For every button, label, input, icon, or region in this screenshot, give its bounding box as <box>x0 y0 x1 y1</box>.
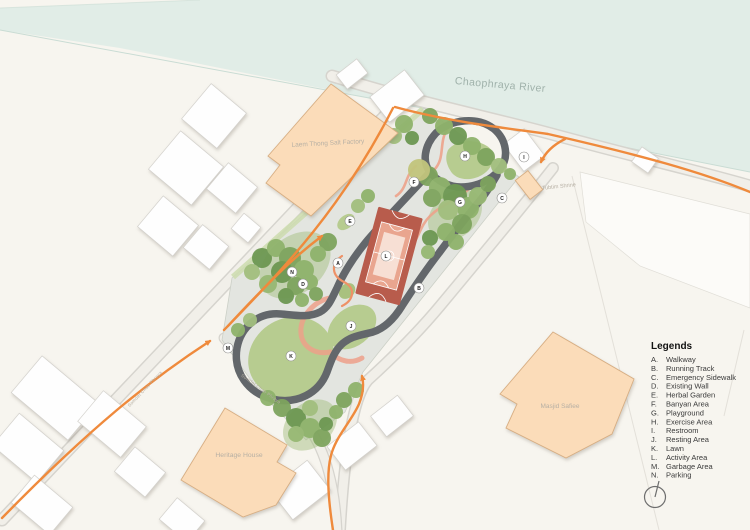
masjid-label: Masjid Safiee <box>540 403 579 410</box>
svg-text:H: H <box>463 154 467 160</box>
marker-i: I <box>519 152 529 162</box>
legend-title: Legends <box>651 341 693 352</box>
svg-text:Banyan Area: Banyan Area <box>666 400 710 409</box>
marker-k: K <box>286 351 296 361</box>
svg-text:N.: N. <box>651 471 659 480</box>
marker-c: C <box>497 193 507 203</box>
svg-text:K: K <box>289 354 293 360</box>
svg-text:Resting Area: Resting Area <box>666 435 710 444</box>
svg-text:G: G <box>458 200 462 206</box>
svg-text:Walkway: Walkway <box>666 355 696 364</box>
legend-row-k: K.Lawn <box>651 444 684 453</box>
svg-text:D.: D. <box>651 382 659 391</box>
svg-text:G.: G. <box>651 408 659 417</box>
svg-text:Restroom: Restroom <box>666 426 699 435</box>
svg-text:Herbal Garden: Herbal Garden <box>666 391 715 400</box>
svg-text:Playground: Playground <box>666 408 704 417</box>
svg-text:Lawn: Lawn <box>666 444 684 453</box>
svg-text:B: B <box>417 286 421 292</box>
marker-n: N <box>287 267 297 277</box>
marker-m: M <box>223 343 233 353</box>
svg-text:I.: I. <box>651 426 655 435</box>
svg-text:M: M <box>226 346 230 352</box>
svg-text:Running Track: Running Track <box>666 364 715 373</box>
svg-text:Existing Wall: Existing Wall <box>666 382 709 391</box>
svg-text:L: L <box>384 254 387 260</box>
svg-text:L.: L. <box>651 453 657 462</box>
svg-text:M.: M. <box>651 462 659 471</box>
svg-text:Garbage Area: Garbage Area <box>666 462 714 471</box>
svg-text:E.: E. <box>651 391 658 400</box>
svg-text:F: F <box>412 180 415 186</box>
marker-l: L <box>381 251 391 261</box>
marker-g: G <box>455 197 465 207</box>
svg-text:J.: J. <box>651 435 657 444</box>
svg-text:A.: A. <box>651 355 658 364</box>
marker-b: B <box>414 283 424 293</box>
svg-text:J: J <box>350 324 353 330</box>
marker-j: J <box>346 321 356 331</box>
marker-d: D <box>298 279 308 289</box>
site-plan-page: A B C D E F G H I J K L M N Chaophraya R… <box>0 0 750 530</box>
svg-text:Activity Area: Activity Area <box>666 453 708 462</box>
svg-text:Exercise Area: Exercise Area <box>666 417 713 426</box>
svg-text:Parking: Parking <box>666 471 691 480</box>
svg-text:N: N <box>290 270 294 276</box>
legend-row-n: N.Parking <box>651 471 691 480</box>
svg-text:C: C <box>500 196 504 202</box>
svg-text:K.: K. <box>651 444 658 453</box>
svg-text:F.: F. <box>651 400 657 409</box>
svg-text:A: A <box>336 261 340 267</box>
marker-a: A <box>333 258 343 268</box>
legend-row-a: A.Walkway <box>651 355 696 364</box>
svg-text:H.: H. <box>651 417 659 426</box>
svg-text:Emergency Sidewalk: Emergency Sidewalk <box>666 373 736 382</box>
svg-text:D: D <box>301 282 305 288</box>
site-plan-map: A B C D E F G H I J K L M N Chaophraya R… <box>0 0 750 530</box>
svg-text:C.: C. <box>651 373 659 382</box>
marker-h: H <box>460 151 470 161</box>
marker-f: F <box>409 177 419 187</box>
heritage-label: Heritage House <box>215 452 262 459</box>
marker-e: E <box>345 216 355 226</box>
svg-text:B.: B. <box>651 364 658 373</box>
